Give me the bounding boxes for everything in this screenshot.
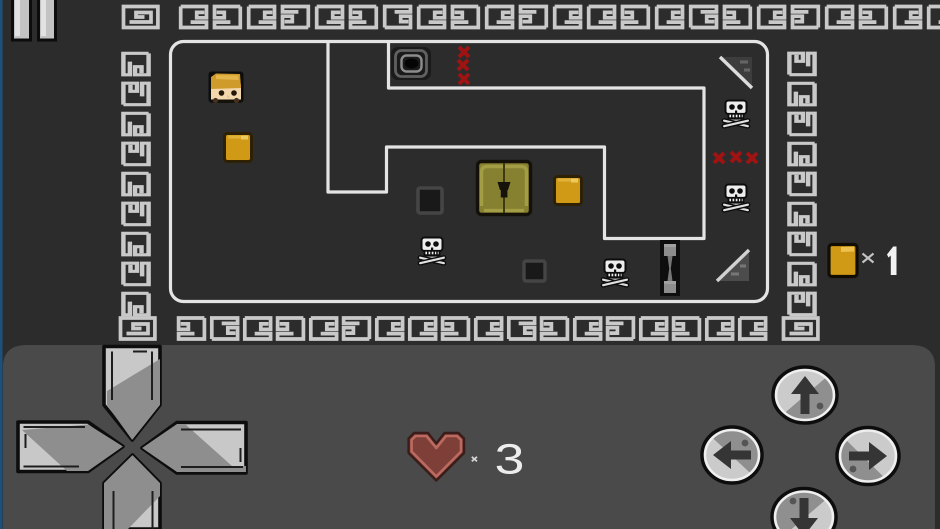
svg-text:3: 3 (495, 436, 525, 483)
